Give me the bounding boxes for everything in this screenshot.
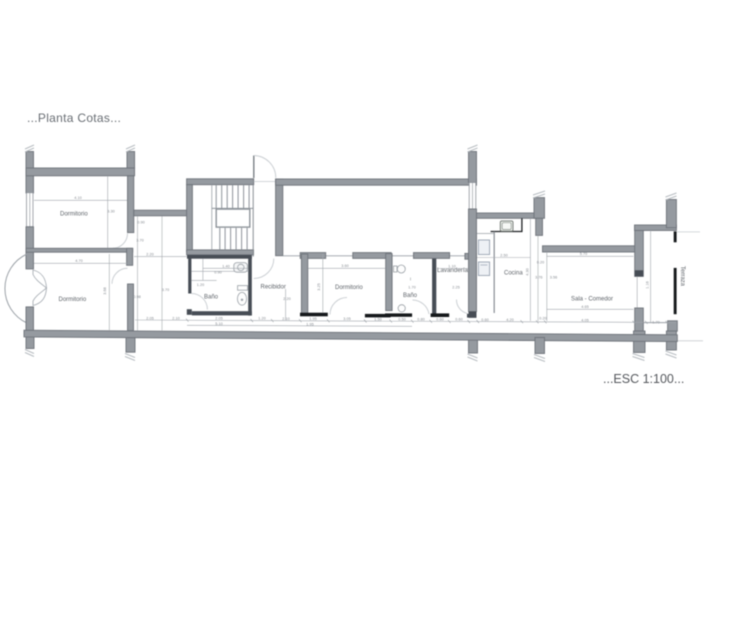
svg-text:3.68: 3.68 [103,287,107,294]
svg-text:2.05: 2.05 [215,317,222,321]
svg-text:4.05: 4.05 [581,318,588,322]
svg-text:4.10: 4.10 [74,196,81,200]
svg-text:2.25: 2.25 [452,285,459,289]
svg-text:1.95: 1.95 [309,317,316,321]
svg-text:2.50: 2.50 [500,253,507,257]
svg-text:2.10: 2.10 [172,316,179,320]
svg-text:2.10: 2.10 [282,317,289,321]
svg-text:Recibidor: Recibidor [261,285,286,291]
svg-text:2.20: 2.20 [283,297,290,301]
svg-text:3.76: 3.76 [535,276,542,280]
svg-text:Dormitorio: Dormitorio [335,285,363,291]
svg-text:1.16: 1.16 [646,281,650,288]
svg-text:...ESC 1:100...: ...ESC 1:100... [603,372,684,386]
svg-text:1.70: 1.70 [408,285,415,289]
svg-text:3.60: 3.60 [341,264,348,268]
svg-text:Dormitorio: Dormitorio [60,212,88,218]
svg-text:Baño: Baño [204,295,219,301]
svg-text:3.56: 3.56 [550,276,557,280]
svg-text:0.50: 0.50 [398,317,405,321]
svg-text:Terraza: Terraza [679,266,685,287]
svg-text:Sala - Comedor: Sala - Comedor [571,297,613,303]
svg-text:0.80: 0.80 [417,318,424,322]
svg-text:0.60: 0.60 [455,318,462,322]
svg-text:...Planta Cotas...: ...Planta Cotas... [27,111,121,125]
svg-text:4.70: 4.70 [75,259,82,263]
svg-text:4.65: 4.65 [581,305,588,309]
svg-text:5.10: 5.10 [215,322,222,326]
svg-text:1.20: 1.20 [197,283,204,287]
svg-text:0.60: 0.60 [481,318,488,322]
svg-text:Baño: Baño [403,293,418,299]
svg-text:0.90: 0.90 [137,221,144,225]
svg-text:3.25: 3.25 [317,283,321,290]
svg-text:0.98: 0.98 [133,295,140,299]
svg-text:1.50: 1.50 [374,317,381,321]
svg-text:0.60: 0.60 [436,318,443,322]
svg-text:Cocina: Cocina [504,271,523,277]
svg-text:2.20: 2.20 [146,253,153,257]
svg-text:3.30: 3.30 [107,210,114,214]
svg-text:1.10: 1.10 [448,264,455,268]
svg-text:3.70: 3.70 [162,288,169,292]
svg-text:Lavandería: Lavandería [437,268,469,274]
svg-text:0.90: 0.90 [214,271,221,275]
svg-text:3.70: 3.70 [136,239,143,243]
svg-text:0.20: 0.20 [537,261,544,265]
svg-text:1.20: 1.20 [258,317,265,321]
svg-text:Dormitorio: Dormitorio [59,297,87,303]
svg-text:3.05: 3.05 [343,317,350,321]
svg-text:5.70: 5.70 [580,252,587,256]
svg-text:4.30: 4.30 [526,268,530,275]
svg-text:1.40: 1.40 [222,264,229,268]
svg-text:0.20: 0.20 [539,316,546,320]
svg-text:1.95: 1.95 [306,322,313,326]
svg-text:4.20: 4.20 [506,318,513,322]
